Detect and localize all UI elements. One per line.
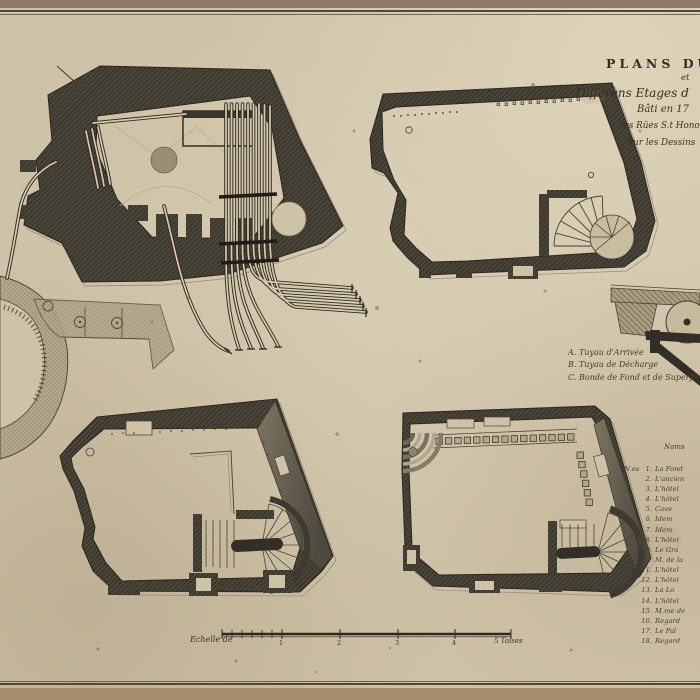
- list-item: 4.L'hôtel: [641, 495, 679, 503]
- plan-terrace-bottom-right: [402, 406, 654, 596]
- legend-label-b: Tuyau de Décharge: [579, 360, 658, 369]
- legend-key-a: A.: [568, 348, 579, 357]
- scale-end-label: 5 Toises: [494, 637, 523, 645]
- notes-heading: Noms: [664, 443, 685, 451]
- legend-key-c: C.: [568, 373, 579, 382]
- list-item: 10.M. de la: [641, 556, 683, 564]
- list-item: 2.L'ancien: [641, 475, 684, 483]
- reservoir-section-detail: [611, 285, 700, 386]
- scale-bar: Echelle de 1 2 3 4 5 Toises: [188, 626, 548, 654]
- legend-row-c: C.Bonde de Fond et de Superficie: [568, 373, 700, 382]
- list-item: 9.Le Gra: [641, 546, 678, 554]
- list-item: 16.Regard: [641, 617, 680, 625]
- legend-key-b: B.: [568, 360, 579, 369]
- scale-tick-4: 4: [452, 639, 456, 647]
- scale-label: Echelle de: [190, 635, 232, 644]
- plan-floor-top-right: [370, 83, 658, 279]
- scale-tick-2: 2: [337, 639, 341, 647]
- title-line-2: et: [681, 73, 689, 83]
- legend-row-b: B.Tuyau de Décharge: [568, 360, 658, 369]
- list-item: 5.Cave: [641, 505, 672, 513]
- title-line-3: Différens Etages d: [576, 86, 689, 100]
- title-line-1: PLANS DU: [606, 56, 700, 71]
- list-item: 15.M.me de: [641, 607, 685, 615]
- scale-tick-3: 3: [395, 639, 399, 647]
- list-item: 11.L'hôtel: [641, 566, 679, 574]
- legend-row-a: A.Tuyau d'Arrivée: [568, 348, 644, 357]
- engraving-scan: { "colors": { "mount_top": "#8d7a67", "m…: [0, 0, 700, 700]
- list-item: 3.L'hôtel: [641, 485, 679, 493]
- list-item: 13.La Lo: [641, 586, 674, 594]
- legend-label-a: Tuyau d'Arrivée: [579, 348, 644, 357]
- list-item: N.os1.La Fond: [641, 465, 683, 473]
- plan-floor-bottom-left: [60, 399, 336, 596]
- list-item: 18.Regard: [641, 637, 680, 645]
- legend-label-c: Bonde de Fond et de Superficie: [579, 373, 700, 382]
- plan-basement-with-pipes: [20, 66, 346, 286]
- list-item: 14.L'hôtel: [641, 597, 679, 605]
- list-item: 8.L'hôtel: [641, 536, 679, 544]
- list-item: 12.L'hôtel: [641, 576, 679, 584]
- list-item: 6.Idem: [641, 515, 673, 523]
- list-item: 17.Le Pal: [641, 627, 676, 635]
- scale-tick-1: 1: [279, 639, 283, 647]
- title-line-6: Sur les Dessins: [627, 138, 695, 148]
- title-line-5: des Rües S.t Honoré: [618, 121, 700, 131]
- list-item: 7.Idem: [641, 526, 673, 534]
- title-line-4: Bâti en 17: [637, 104, 689, 115]
- numero-prefix: N.os: [624, 465, 639, 473]
